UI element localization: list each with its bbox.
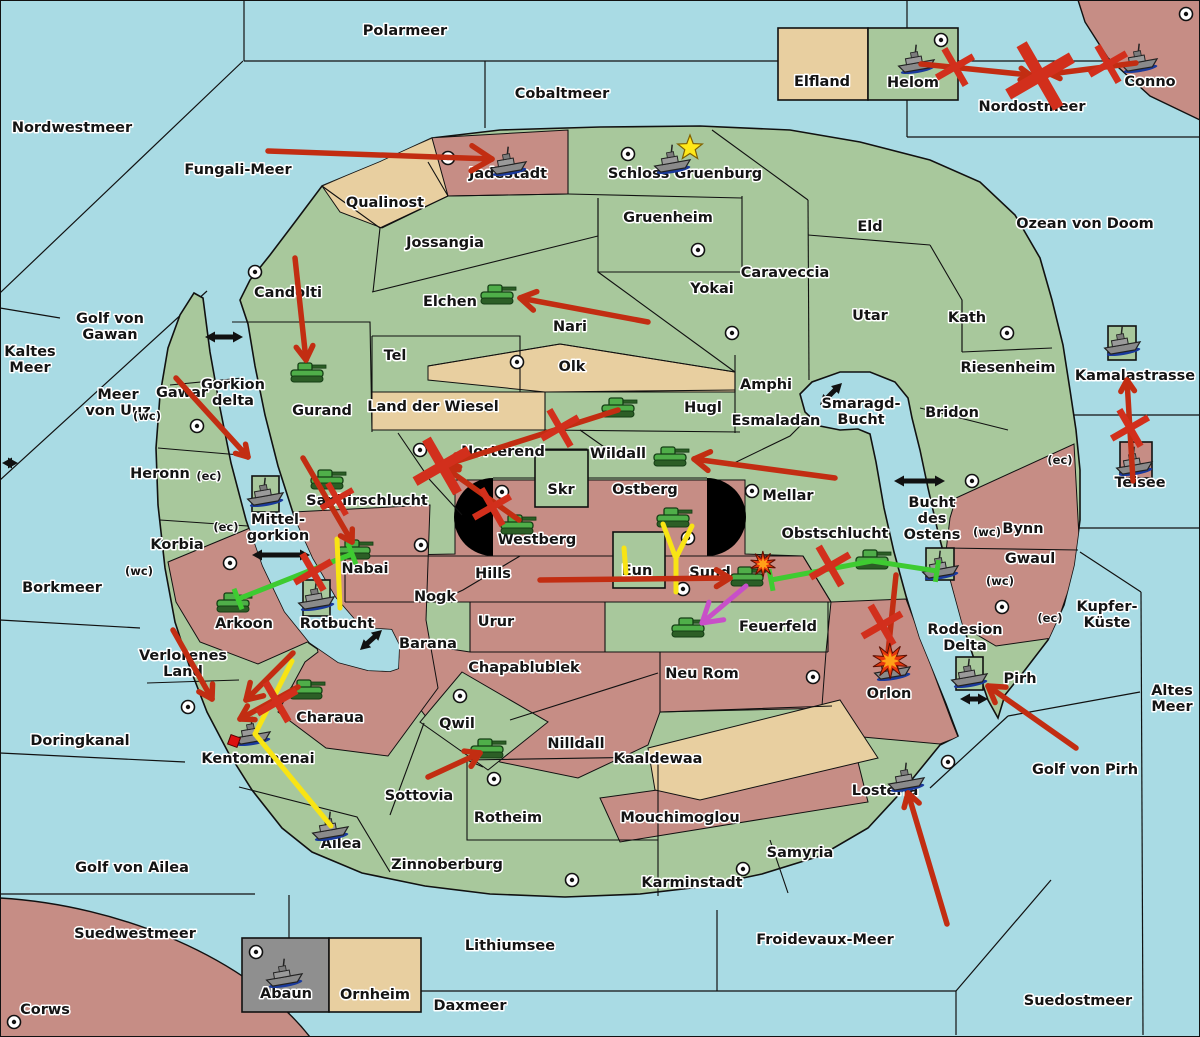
region-label: Urur [478, 614, 515, 630]
supply-center-icon [935, 34, 948, 47]
region-label: Rotbucht [300, 616, 375, 632]
supply-center-icon [8, 1016, 21, 1029]
region-label: AltesMeer [1151, 683, 1193, 715]
supply-center-icon [942, 756, 955, 769]
campaign-map: PolarmeerCobaltmeerNordwestmeerFungali-M… [0, 0, 1200, 1037]
region-label: Obstschlucht [782, 526, 889, 542]
supply-center-icon [746, 485, 759, 498]
region-label: KaltesMeer [4, 344, 55, 376]
supply-center-icon [224, 557, 237, 570]
region-label: Mittel-gorkion [247, 512, 309, 544]
supply-center-icon [737, 863, 750, 876]
region-label: Froidevaux-Meer [756, 932, 894, 948]
region-label: Riesenheim [961, 360, 1056, 376]
supply-center-icon [249, 266, 262, 279]
region-label: Conno [1124, 74, 1175, 90]
supply-center-icon [1001, 327, 1014, 340]
region-label: Candolti [254, 285, 322, 301]
supply-center-icon [182, 701, 195, 714]
region-label: Doringkanal [30, 733, 129, 749]
supply-center-icon [966, 475, 979, 488]
region-label: Ozean von Doom [1016, 216, 1154, 232]
region-label: Feuerfeld [739, 619, 817, 635]
region-label: Korbia [150, 537, 203, 553]
region-label: Land der Wiesel [367, 399, 498, 415]
region-label: Helom [887, 75, 939, 91]
region-label: Lithiumsee [465, 938, 555, 954]
region-label: Karminstadt [641, 875, 742, 891]
region-label: Yokai [689, 281, 734, 297]
supply-center-icon [566, 874, 579, 887]
region-label: Mellar [762, 488, 814, 504]
region-label: Tel [384, 348, 407, 364]
coast-tag-label: (wc) [125, 564, 153, 578]
support-order-line [624, 548, 626, 573]
region-label: Golf von Ailea [75, 860, 189, 876]
supply-center-icon [191, 420, 204, 433]
region-label: Qualinost [346, 195, 424, 211]
region-label: Cobaltmeer [515, 86, 610, 102]
coast-tag-label: (wc) [133, 409, 161, 423]
region-label: Daxmeer [433, 998, 507, 1014]
supply-center-icon [726, 327, 739, 340]
supply-center-icon [1180, 8, 1193, 21]
region-label: Nordostmeer [978, 99, 1086, 115]
region-label: Golf vonGawan [76, 311, 144, 343]
region-label: Teisee [1114, 475, 1165, 491]
supply-center-icon [511, 356, 524, 369]
region-label: Wildall [590, 446, 646, 462]
region-label: Kentommenai [201, 751, 314, 767]
region-label: Utar [852, 308, 888, 324]
region-label: Heronn [130, 466, 190, 482]
region-label: Eld [857, 219, 882, 235]
region-label: Orlon [867, 686, 912, 702]
region-label: Nabai [341, 561, 388, 577]
coast-tag-label: (ec) [213, 520, 238, 534]
region-label: Suedostmeer [1024, 993, 1133, 1009]
region-label: Kamalastrasse [1075, 368, 1195, 384]
region-label: Nilldall [547, 736, 604, 752]
region-label: Nogk [414, 589, 456, 605]
region-label: Arkoon [215, 616, 273, 632]
red-region[interactable] [660, 652, 832, 712]
region-label: Fungali-Meer [184, 162, 292, 178]
region-label: Pirh [1003, 671, 1036, 687]
region-label: Skr [547, 482, 575, 498]
region-label: Chapablublek [468, 660, 580, 676]
map-stage: PolarmeerCobaltmeerNordwestmeerFungali-M… [0, 0, 1200, 1037]
region-label: Elchen [423, 294, 477, 310]
region-label: Charaua [296, 710, 364, 726]
supply-center-icon [807, 671, 820, 684]
supply-center-icon [692, 244, 705, 257]
region-label: Sottovia [385, 788, 453, 804]
region-label: Qwil [439, 716, 475, 732]
supply-center-icon [454, 690, 467, 703]
region-label: Abaun [260, 986, 312, 1002]
region-label: Neu Rom [665, 666, 739, 682]
region-label: Suedwestmeer [74, 926, 197, 942]
region-label: Borkmeer [22, 580, 103, 596]
region-label: Kupfer-Küste [1077, 599, 1138, 631]
region-label: Kath [948, 310, 986, 326]
coast-tag-label: (ec) [196, 469, 221, 483]
region-label: Gruenheim [623, 210, 713, 226]
region-label: Hugl [684, 400, 722, 416]
region-label: Rotheim [474, 810, 542, 826]
region-label: Jossangia [405, 235, 484, 251]
region-label: Hills [475, 566, 511, 582]
region-label: Amphi [740, 377, 792, 393]
support-order-line [337, 539, 340, 608]
region-label: Golf von Pirh [1032, 762, 1138, 778]
region-label: Nordwestmeer [12, 120, 133, 136]
region-label: Esmaladan [732, 413, 821, 429]
region-label: Bridon [925, 405, 979, 421]
supply-center-icon [488, 773, 501, 786]
region-label: Gurand [292, 403, 352, 419]
coast-tag-label: (wc) [986, 574, 1014, 588]
supply-center-icon [415, 539, 428, 552]
region-label: Nari [553, 319, 587, 335]
supply-center-icon [996, 601, 1009, 614]
supply-center-icon [622, 148, 635, 161]
region-label: Barana [399, 636, 457, 652]
region-label: Ostberg [612, 482, 678, 498]
region-label: Gwaul [1005, 551, 1055, 567]
coast-tag-label: (ec) [1037, 611, 1062, 625]
supply-center-icon [250, 946, 263, 959]
region-label: Samyria [767, 845, 834, 861]
coast-tag-label: (ec) [1047, 453, 1072, 467]
region-label: Mouchimoglou [620, 810, 739, 826]
region-label: Polarmeer [363, 23, 448, 39]
region-label: Elfland [794, 74, 850, 90]
coast-tag-label: (wc) [973, 525, 1001, 539]
region-label: Ornheim [340, 987, 410, 1003]
region-label: Bynn [1002, 521, 1043, 537]
region-label: Corws [20, 1002, 70, 1018]
region-label: Kaaldewaa [614, 751, 703, 767]
region-label: Zinnoberburg [391, 857, 503, 873]
region-label: Caraveccia [741, 265, 830, 281]
region-label: Olk [559, 359, 586, 375]
